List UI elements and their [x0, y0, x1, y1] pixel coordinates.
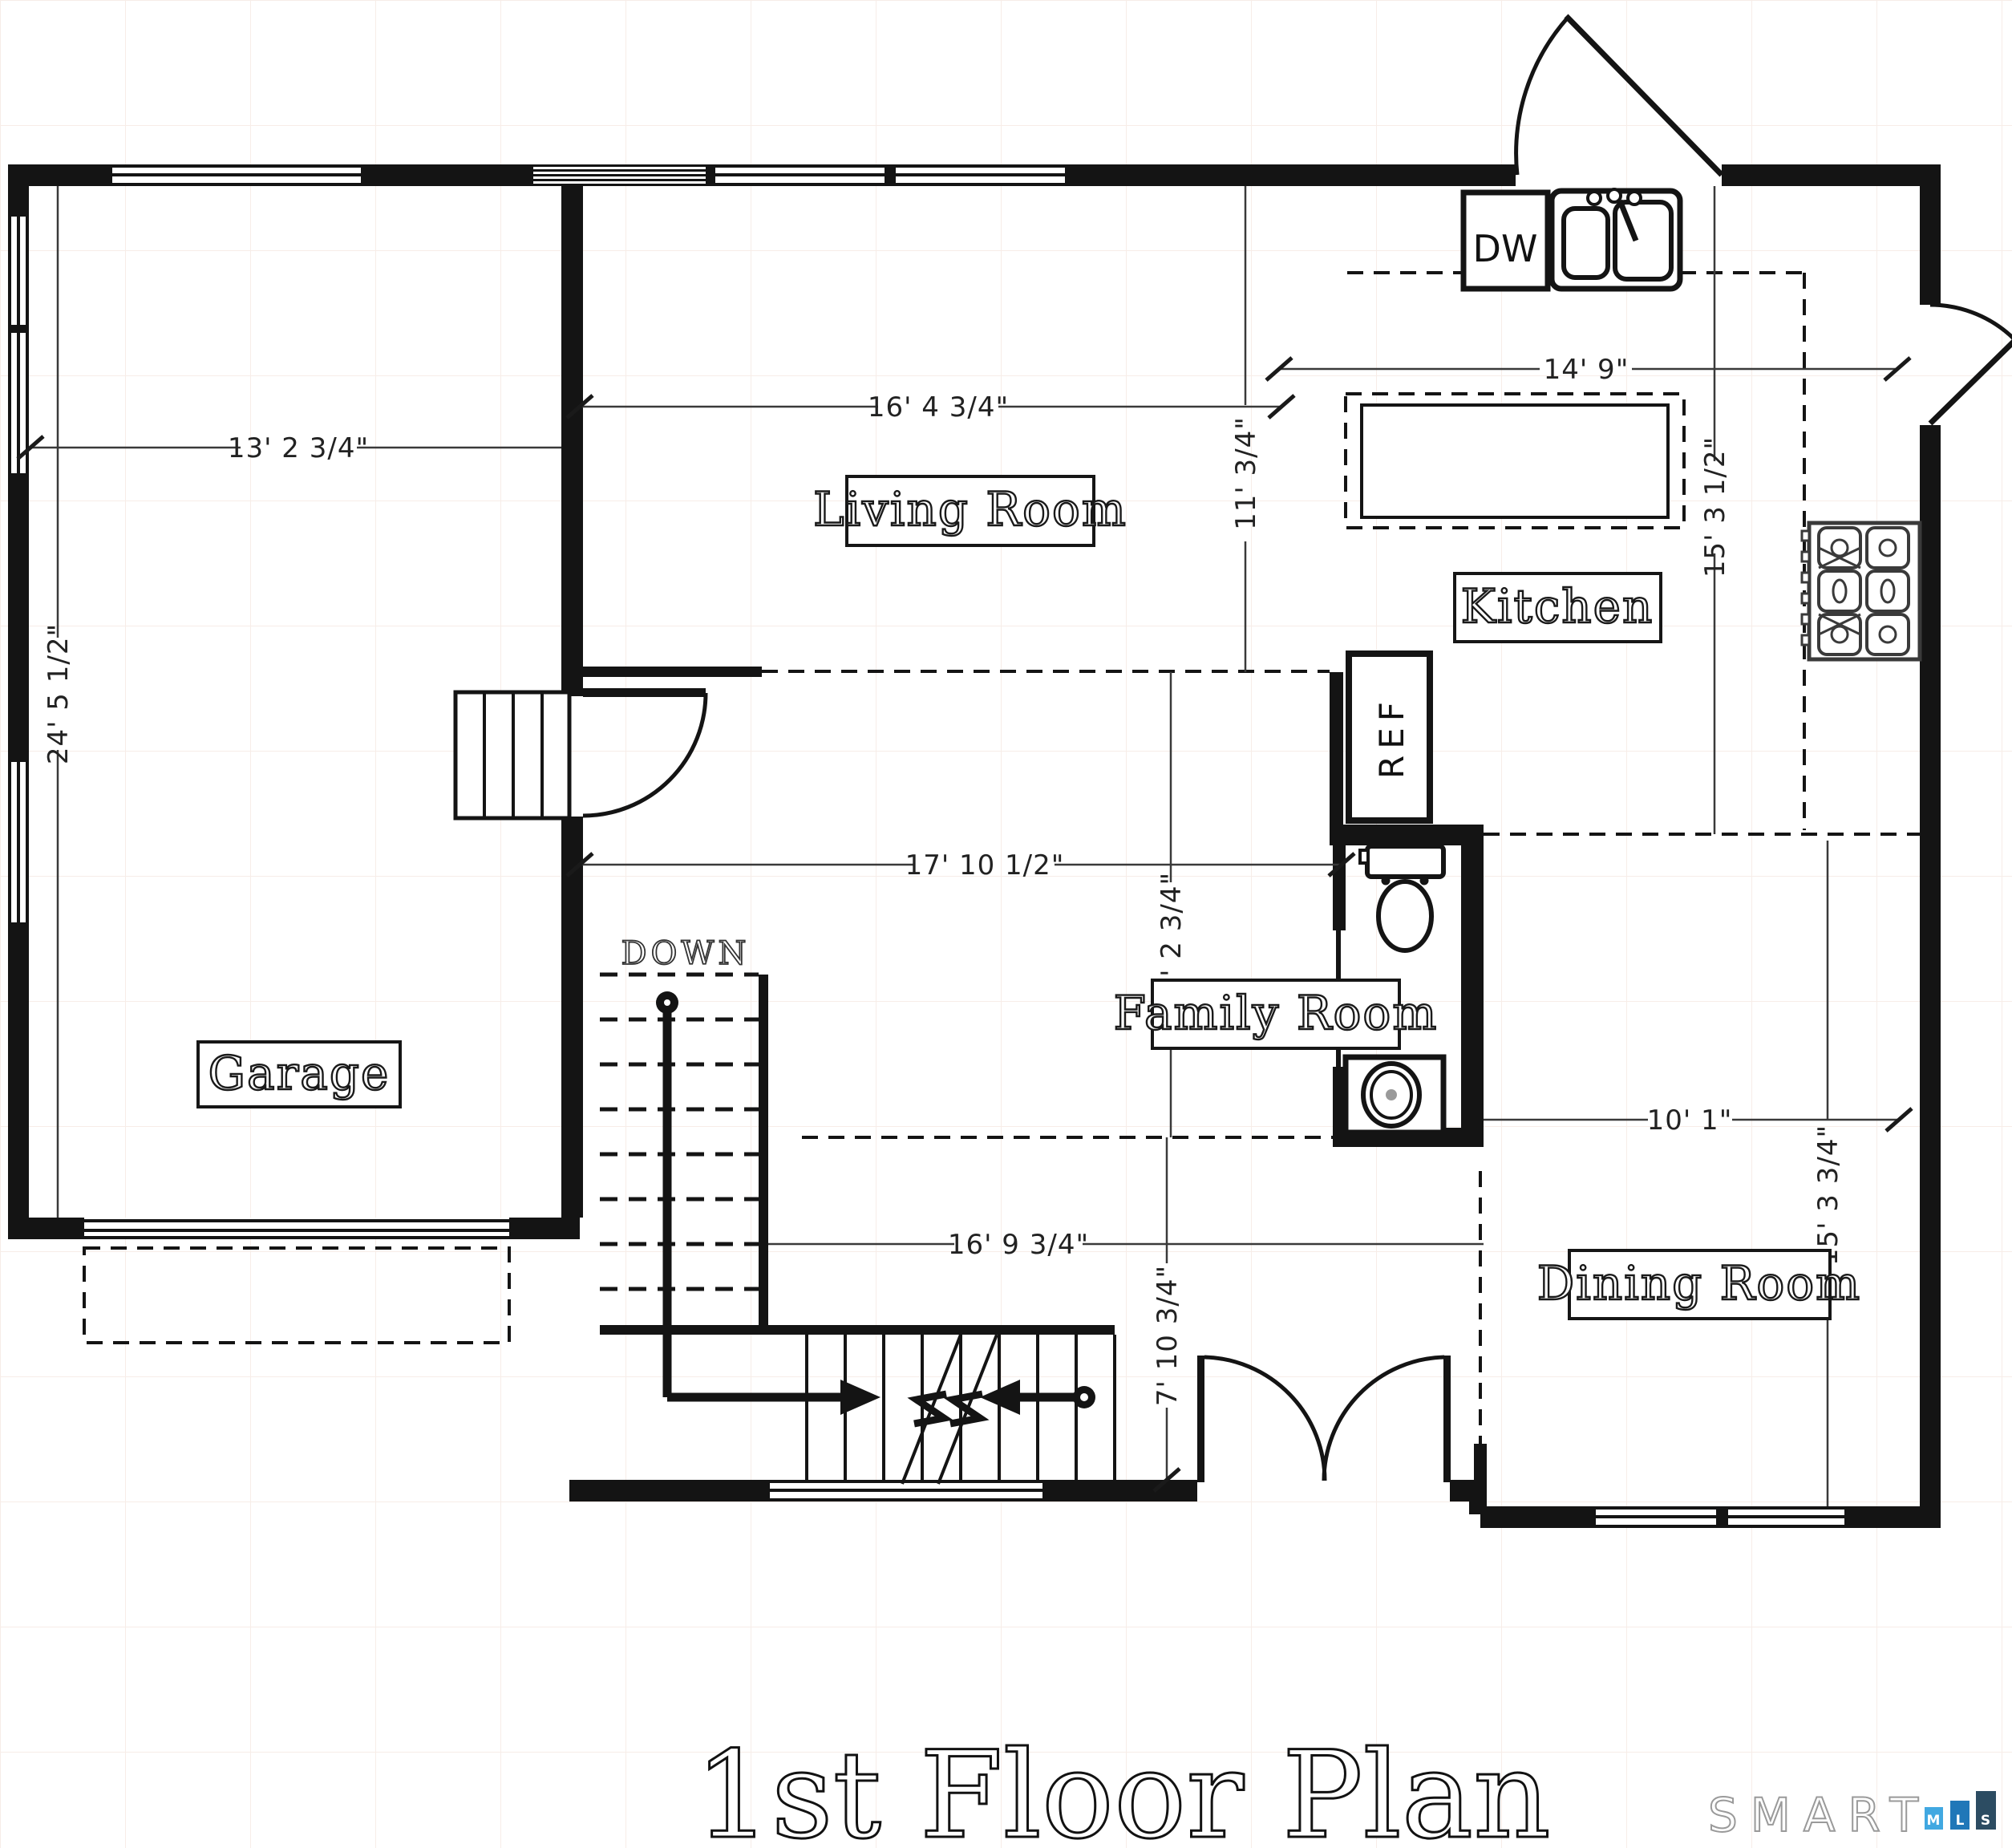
front-door-leaf-right	[1443, 1356, 1451, 1482]
side-door-swing	[1930, 305, 2012, 340]
entry-door-swing	[583, 693, 706, 816]
dining-room-label: Dining Room	[1537, 1256, 1861, 1311]
range-stove	[1802, 523, 1920, 659]
dim-dining-depth: 15' 3 3/4"	[1812, 1125, 1844, 1266]
dim-kitchen-width: 14' 9"	[1544, 354, 1629, 386]
garage-apron	[84, 1248, 509, 1343]
logo-brand-text: SMART	[1708, 1788, 1931, 1842]
stair-arrow-right	[840, 1380, 881, 1415]
smart-mls-logo: SMART M L S	[1708, 1788, 1996, 1842]
stair-landing-edge	[600, 1325, 1115, 1335]
dim-garage-width: 13' 2 3/4"	[228, 432, 369, 464]
kitchen-fixtures: DW	[1346, 189, 1920, 830]
dim-kitchen-depth: 15' 3 1/2"	[1699, 436, 1731, 577]
back-door-swing	[1516, 18, 1568, 175]
front-door-leaf-left	[1197, 1356, 1204, 1482]
floor-plan-drawing: DW	[0, 0, 2012, 1848]
front-door-swing-left	[1204, 1357, 1325, 1481]
logo-letter-l: L	[1956, 1813, 1965, 1829]
kitchen-island	[1346, 394, 1684, 528]
dim-garage-depth: 24' 5 1/2"	[43, 623, 75, 764]
dining-window-2	[1728, 1506, 1844, 1528]
toilet-icon	[1360, 846, 1443, 950]
upper-stair-treads	[600, 975, 759, 1289]
dim-living-depth: 11' 3/4"	[1230, 416, 1262, 530]
stairs-down-label: DOWN	[621, 935, 751, 972]
dim-foyer-depth: 7' 10 3/4"	[1152, 1265, 1184, 1406]
kitchen-label: Kitchen	[1461, 579, 1654, 634]
family-window	[770, 1480, 1042, 1501]
stair-direction-path	[656, 991, 1095, 1415]
family-room-label: Family Room	[1114, 986, 1439, 1040]
vanity-sink-icon	[1346, 1057, 1443, 1133]
living-window-1	[715, 164, 885, 186]
back-door-leaf	[1566, 16, 1722, 175]
living-window-2	[896, 164, 1065, 186]
refrigerator: REF	[1349, 654, 1430, 821]
dining-window-1	[1596, 1506, 1716, 1528]
refrigerator-label: REF	[1372, 695, 1411, 779]
stair-break-marks	[914, 1394, 982, 1424]
garage-left-window-1	[8, 217, 29, 325]
dim-living-width: 16' 4 3/4"	[868, 391, 1009, 423]
entry-door-leaf	[583, 688, 706, 697]
garage-door	[84, 1218, 509, 1239]
floor-plan-page: DW	[0, 0, 2012, 1848]
front-door-swing-right	[1324, 1357, 1444, 1481]
garage-left-window-3	[8, 762, 29, 922]
logo-letter-s: S	[1981, 1813, 1990, 1829]
dim-stair-width: 16' 9 3/4"	[948, 1229, 1089, 1261]
side-door-leaf	[1930, 340, 2012, 423]
dishwasher-label: DW	[1473, 227, 1538, 270]
garage-label: Garage	[208, 1046, 391, 1100]
dim-family-width: 17' 10 1/2"	[905, 849, 1065, 881]
room-labels: Garage Living Room Kitchen Family Room D…	[198, 476, 1861, 1319]
porch-window	[533, 164, 706, 186]
dim-dining-width: 10' 1"	[1647, 1104, 1733, 1137]
page-title: 1st Floor Plan	[694, 1726, 1550, 1848]
logo-letter-m: M	[1927, 1813, 1941, 1829]
kitchen-sink	[1552, 189, 1680, 289]
living-room-label: Living Room	[813, 482, 1127, 537]
garage-top-window	[112, 164, 361, 186]
